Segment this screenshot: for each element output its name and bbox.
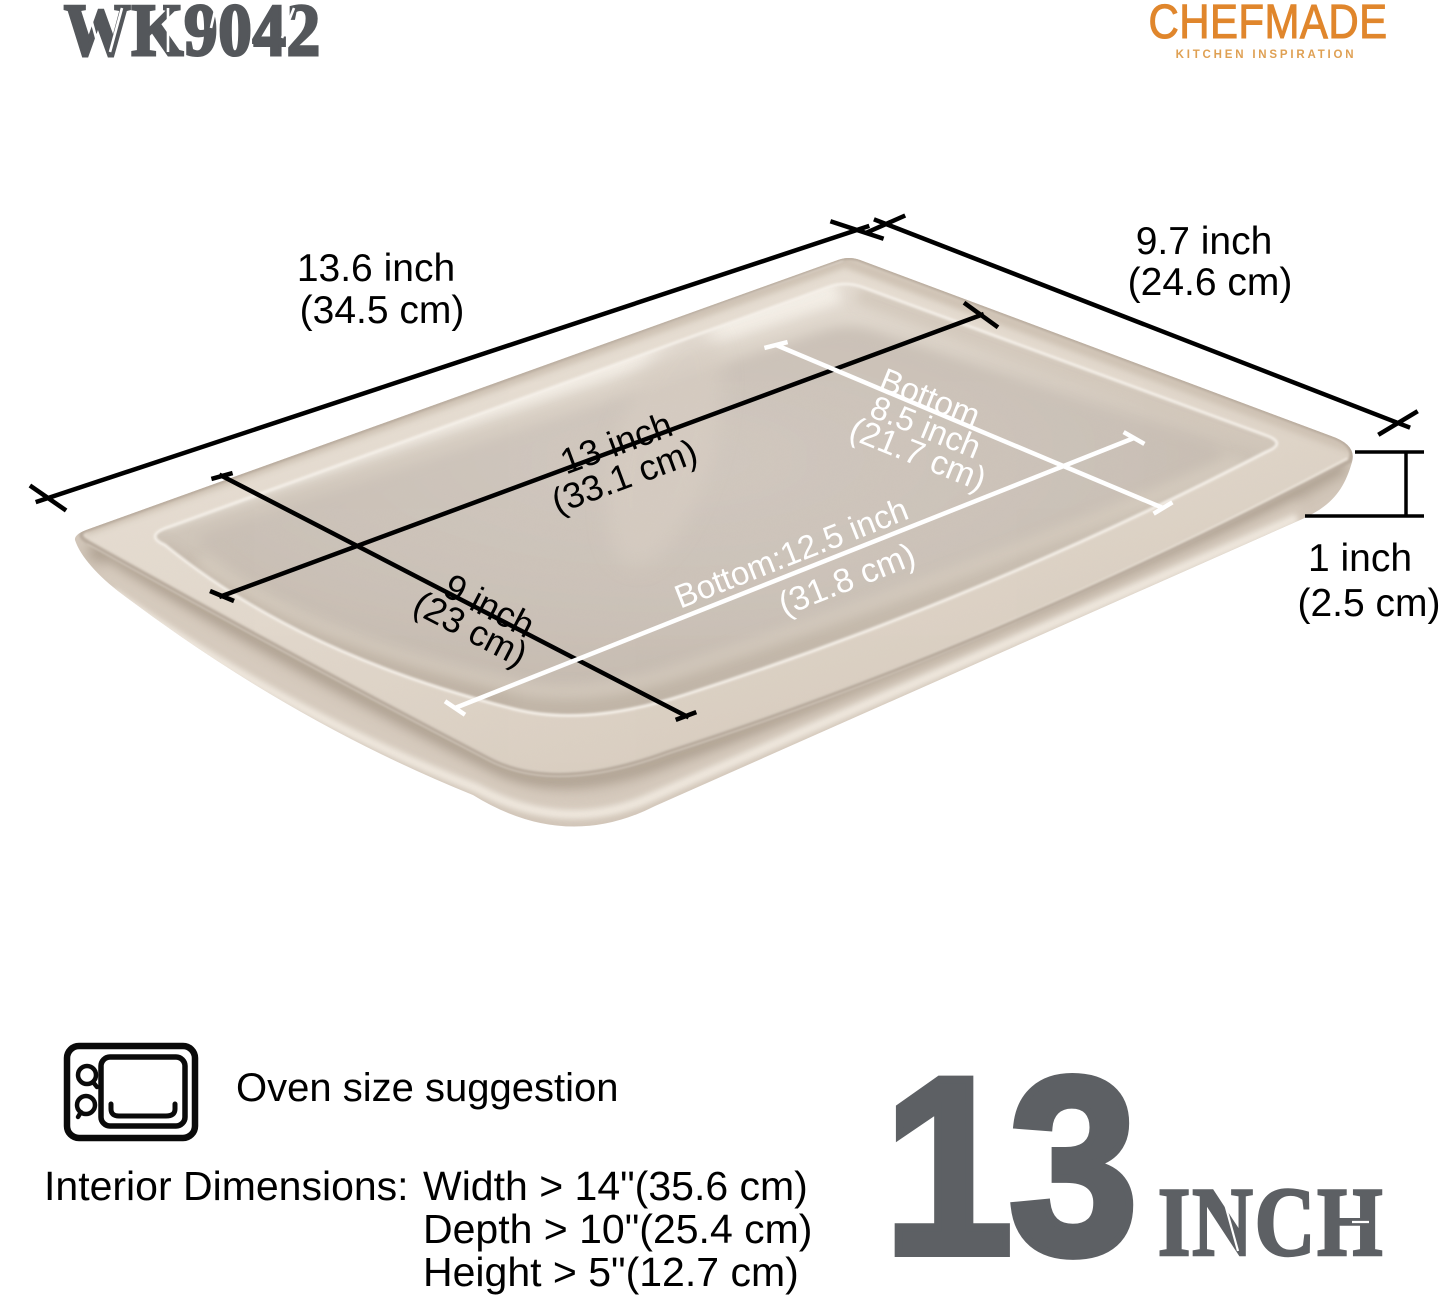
- svg-text:13: 13: [884, 1026, 1135, 1295]
- svg-text:(24.6 cm): (24.6 cm): [1128, 261, 1293, 304]
- svg-text:(34.5 cm): (34.5 cm): [300, 289, 465, 332]
- svg-text:Depth > 10"(25.4 cm): Depth > 10"(25.4 cm): [423, 1206, 812, 1252]
- svg-text:CHEFMADE: CHEFMADE: [1148, 0, 1387, 49]
- svg-text:1 inch: 1 inch: [1308, 537, 1412, 580]
- svg-text:9.7 inch: 9.7 inch: [1136, 220, 1273, 263]
- svg-text:Interior Dimensions:: Interior Dimensions:: [44, 1163, 409, 1209]
- svg-text:INCH: INCH: [1158, 1167, 1385, 1277]
- svg-text:(2.5 cm): (2.5 cm): [1297, 582, 1440, 625]
- svg-text:KITCHEN INSPIRATION: KITCHEN INSPIRATION: [1176, 49, 1357, 61]
- svg-text:Oven size suggestion: Oven size suggestion: [236, 1066, 618, 1110]
- svg-text:13.6 inch: 13.6 inch: [297, 247, 455, 290]
- svg-text:Height > 5"(12.7 cm): Height > 5"(12.7 cm): [423, 1249, 799, 1295]
- svg-text:Width > 14"(35.6 cm): Width > 14"(35.6 cm): [423, 1163, 808, 1209]
